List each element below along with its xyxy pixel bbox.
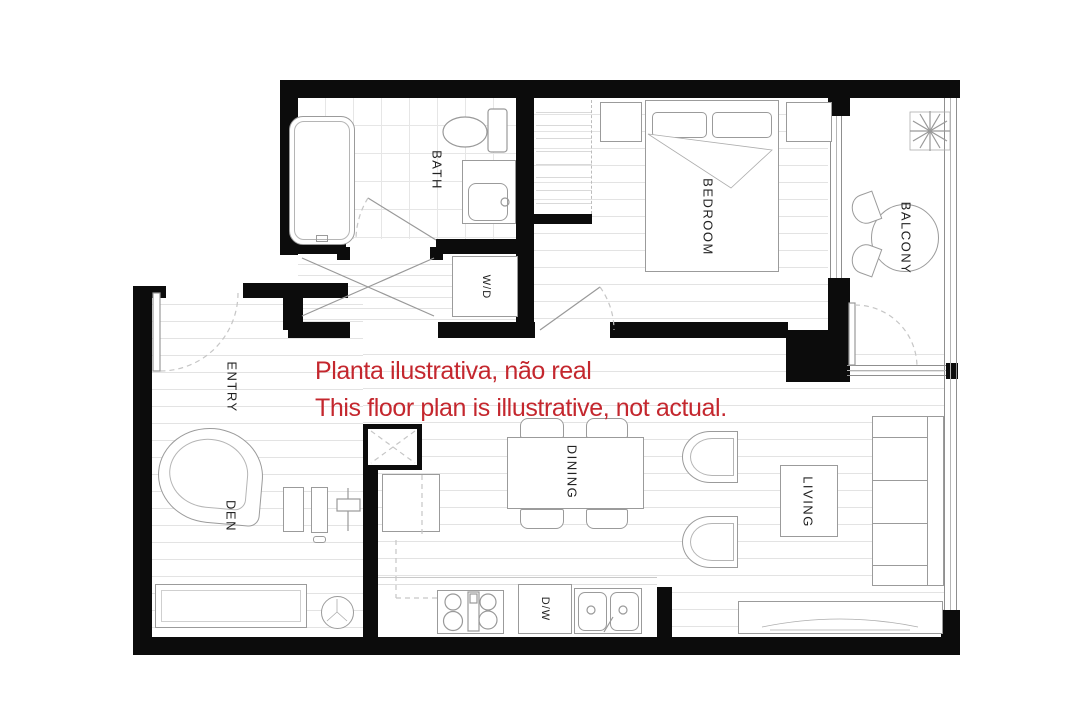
balcony-door [849, 303, 917, 367]
entry-label: ENTRY [225, 361, 240, 412]
balcony-label: BALCONY [899, 202, 914, 275]
sink-drains [587, 606, 627, 632]
entry-door [153, 293, 238, 371]
dining-label: DINING [565, 445, 580, 500]
kitchen-counter-dashes [396, 475, 437, 598]
disclaimer-line-pt: Planta ilustrativa, não real [315, 353, 727, 390]
faucet-icon [501, 198, 509, 206]
pantry-x-icon [371, 431, 415, 463]
bath-door [356, 198, 436, 240]
bedroom-label: BEDROOM [701, 178, 716, 256]
washer-dryer-label: W/D [480, 275, 492, 299]
living-label: LIVING [801, 476, 816, 528]
den-label: DEN [224, 500, 239, 532]
dishwasher-label: D/W [539, 597, 551, 621]
stool-detail [327, 599, 347, 621]
disclaimer-annotation: Planta ilustrativa, não real This floor … [315, 353, 727, 427]
bath-label: BATH [430, 150, 445, 190]
closet-bifold-doors [302, 258, 434, 316]
toilet [443, 109, 507, 152]
disclaimer-line-en: This floor plan is illustrative, not act… [315, 390, 727, 427]
balcony-plant-icon [910, 111, 950, 151]
stove-burners [444, 592, 498, 631]
floor-plan: BATH BEDROOM BALCONY W/D ENTRY DEN DININ… [0, 0, 1080, 720]
desk-lamp-icon [337, 488, 360, 531]
tv-icon [762, 619, 918, 630]
bedroom-door [540, 287, 614, 330]
